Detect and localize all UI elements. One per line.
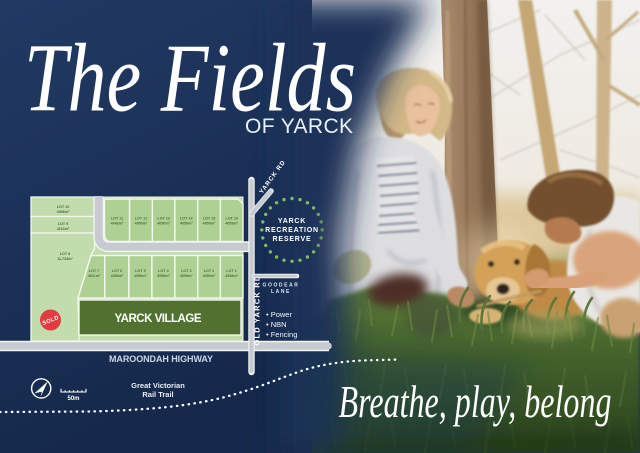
svg-text:4050m²: 4050m² bbox=[157, 274, 170, 278]
svg-text:4011m²: 4011m² bbox=[88, 274, 101, 278]
svg-text:4050m²: 4050m² bbox=[135, 222, 148, 226]
svg-text:LOT 7: LOT 7 bbox=[89, 269, 99, 273]
svg-text:4042m²: 4042m² bbox=[111, 222, 124, 226]
svg-text:LOT 11: LOT 11 bbox=[111, 217, 123, 221]
svg-text:4050m²: 4050m² bbox=[134, 274, 147, 278]
svg-text:11,733m²: 11,733m² bbox=[57, 257, 73, 261]
svg-text:4528m²: 4528m² bbox=[225, 274, 238, 278]
svg-text:YARCK: YARCK bbox=[278, 218, 306, 225]
svg-text:4050m²: 4050m² bbox=[157, 222, 170, 226]
svg-text:• Fencing: • Fencing bbox=[266, 330, 297, 339]
svg-text:LOT 10: LOT 10 bbox=[57, 205, 70, 209]
svg-text:LOT 5: LOT 5 bbox=[135, 269, 145, 273]
svg-text:4058m²: 4058m² bbox=[225, 222, 238, 226]
svg-text:LOT 3: LOT 3 bbox=[181, 269, 191, 273]
svg-text:LOT 15: LOT 15 bbox=[203, 217, 216, 221]
svg-text:GOODEAR: GOODEAR bbox=[262, 283, 299, 289]
svg-text:YARCK VILLAGE: YARCK VILLAGE bbox=[115, 313, 202, 325]
svg-text:LANE: LANE bbox=[271, 289, 291, 295]
svg-text:4050m²: 4050m² bbox=[203, 222, 216, 226]
svg-text:RESERVE: RESERVE bbox=[273, 236, 312, 243]
svg-text:OF YARCK: OF YARCK bbox=[245, 115, 353, 138]
svg-text:50m: 50m bbox=[67, 396, 79, 402]
svg-text:RECREATION: RECREATION bbox=[265, 227, 319, 234]
svg-text:Rail Trail: Rail Trail bbox=[142, 390, 173, 399]
svg-text:4050m²: 4050m² bbox=[111, 274, 124, 278]
svg-text:MAROONDAH HIGHWAY: MAROONDAH HIGHWAY bbox=[109, 354, 213, 364]
svg-text:4050m²: 4050m² bbox=[180, 222, 193, 226]
svg-text:LOT 6: LOT 6 bbox=[112, 269, 122, 273]
svg-text:4050m²: 4050m² bbox=[180, 274, 193, 278]
svg-text:• NBN: • NBN bbox=[266, 320, 287, 329]
svg-text:LOT 13: LOT 13 bbox=[157, 217, 170, 221]
svg-text:LOT 8: LOT 8 bbox=[60, 252, 70, 256]
svg-text:LOT 4: LOT 4 bbox=[158, 269, 169, 273]
svg-text:LOT 1: LOT 1 bbox=[226, 269, 236, 273]
svg-text:• Power: • Power bbox=[266, 310, 292, 319]
svg-text:4116m²: 4116m² bbox=[57, 227, 70, 231]
svg-text:Great Victorian: Great Victorian bbox=[131, 381, 185, 390]
svg-text:OLD YARCK RD: OLD YARCK RD bbox=[253, 274, 262, 345]
svg-text:LOT 9: LOT 9 bbox=[58, 222, 68, 226]
svg-text:4050m²: 4050m² bbox=[203, 274, 216, 278]
svg-text:LOT 16: LOT 16 bbox=[225, 217, 238, 221]
svg-text:LOT 14: LOT 14 bbox=[180, 217, 193, 221]
svg-text:4906m²: 4906m² bbox=[57, 210, 70, 214]
svg-text:LOT 12: LOT 12 bbox=[135, 217, 148, 221]
svg-text:LOT 2: LOT 2 bbox=[204, 269, 214, 273]
svg-text:Breathe, play, belong: Breathe, play, belong bbox=[339, 376, 612, 427]
